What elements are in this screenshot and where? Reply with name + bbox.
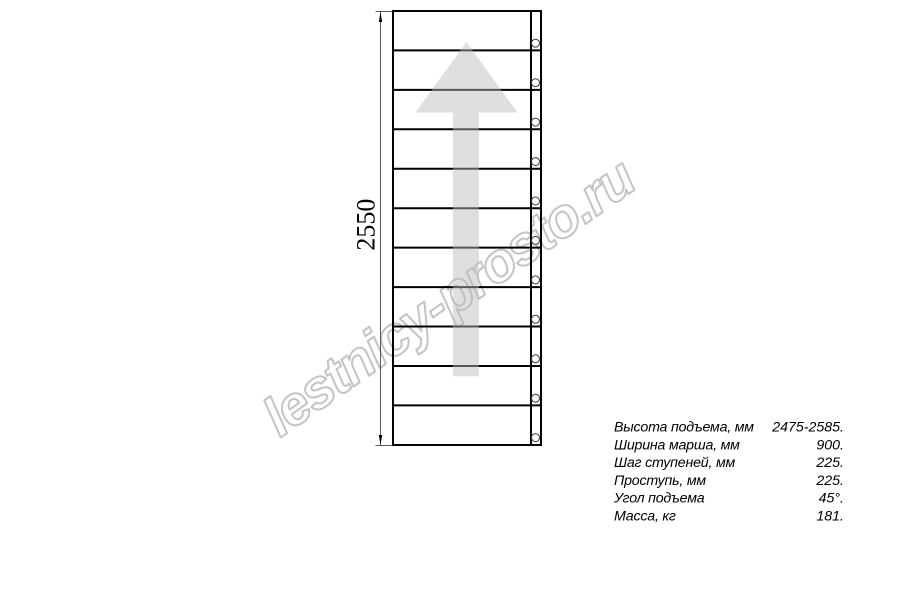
svg-text:Угол подъема: Угол подъема — [613, 491, 705, 507]
svg-text:Проступь, мм: Проступь, мм — [614, 473, 706, 489]
svg-text:900.: 900. — [816, 437, 844, 453]
svg-text:Шаг ступеней, мм: Шаг ступеней, мм — [614, 455, 735, 471]
svg-text:2550: 2550 — [352, 199, 381, 251]
svg-text:Высота подъема, мм: Высота подъема, мм — [614, 420, 754, 436]
svg-text:181.: 181. — [816, 508, 844, 524]
svg-text:225.: 225. — [815, 455, 844, 471]
svg-text:225.: 225. — [815, 473, 844, 489]
svg-text:2475-2585.: 2475-2585. — [771, 420, 844, 436]
svg-text:Ширина марша, мм: Ширина марша, мм — [614, 437, 740, 453]
svg-text:45°.: 45°. — [819, 491, 844, 507]
svg-text:Масса, кг: Масса, кг — [614, 508, 676, 524]
